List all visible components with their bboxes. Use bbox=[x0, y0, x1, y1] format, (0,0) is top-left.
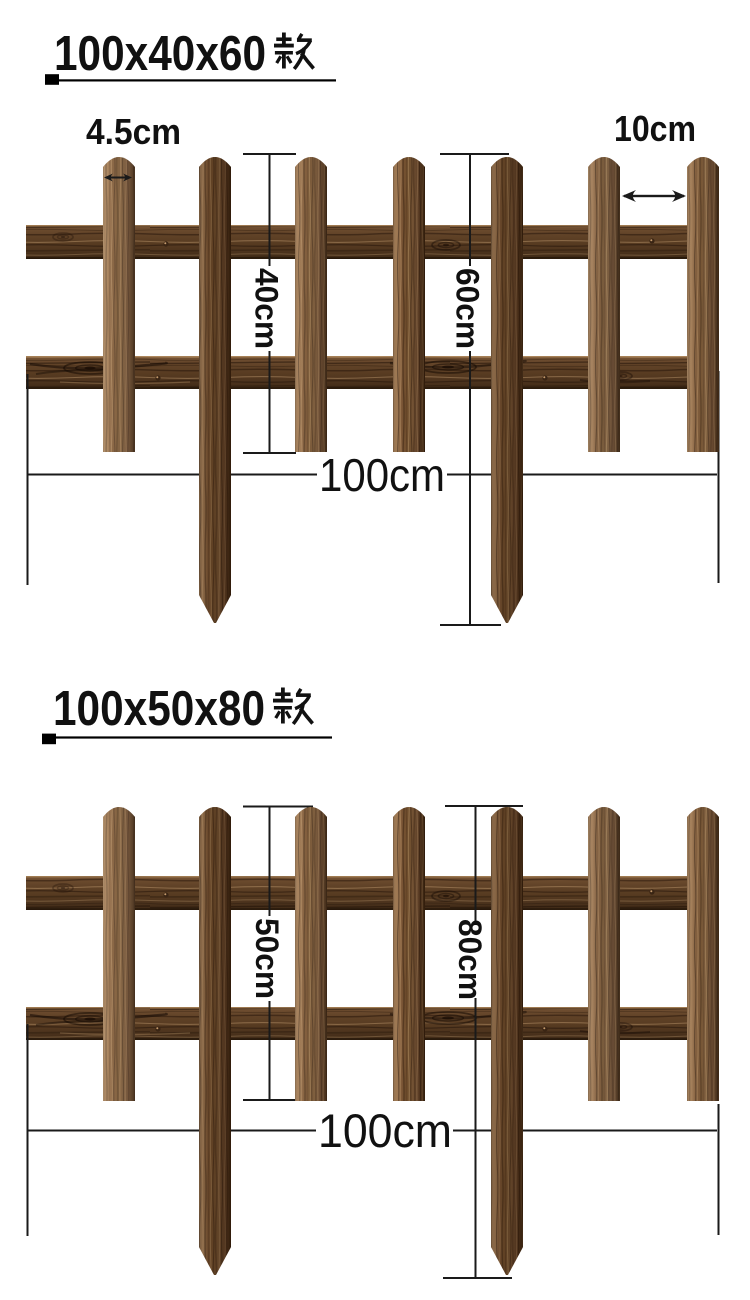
svg-text:4.5cm: 4.5cm bbox=[86, 111, 181, 152]
svg-text:100cm: 100cm bbox=[318, 1104, 452, 1157]
svg-text:100cm: 100cm bbox=[319, 449, 445, 501]
svg-text:40cm: 40cm bbox=[249, 268, 285, 349]
svg-text:50cm: 50cm bbox=[249, 918, 285, 999]
svg-text:10cm: 10cm bbox=[614, 108, 696, 149]
svg-text:80cm: 80cm bbox=[452, 919, 488, 1000]
svg-text:100x40x60: 100x40x60 bbox=[54, 27, 266, 81]
svg-text:100x50x80: 100x50x80 bbox=[53, 682, 265, 736]
svg-text:60cm: 60cm bbox=[450, 268, 486, 349]
